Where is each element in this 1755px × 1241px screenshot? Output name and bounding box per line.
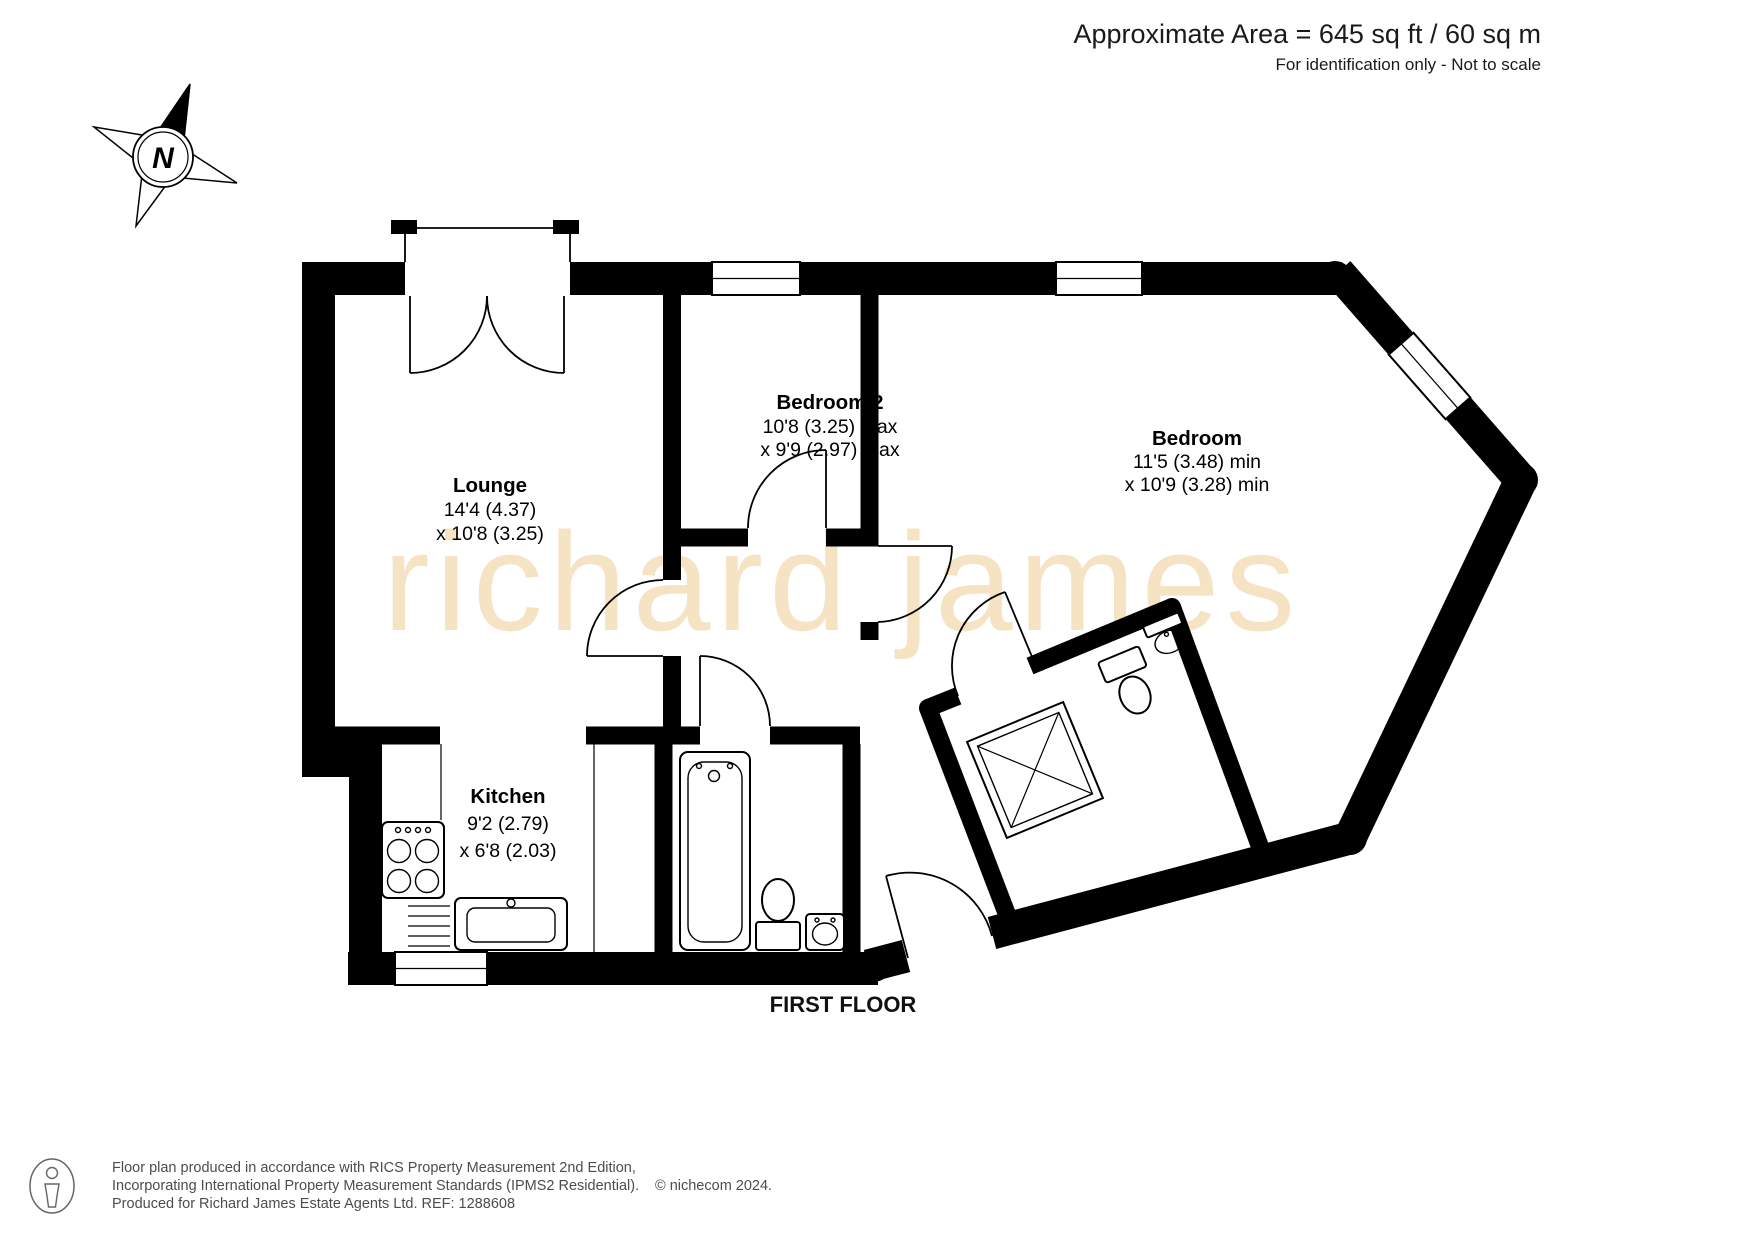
bedroom2-name: Bedroom 2 xyxy=(776,391,883,414)
footer-line1: Floor plan produced in accordance with R… xyxy=(112,1160,636,1176)
toilet xyxy=(756,879,800,950)
first-floor-label: FIRST FLOOR xyxy=(770,992,917,1017)
kitchen-name: Kitchen xyxy=(470,785,545,808)
lounge-name: Lounge xyxy=(453,474,527,497)
person-icon xyxy=(30,1159,74,1213)
shower xyxy=(967,702,1103,838)
bedroom-name: Bedroom xyxy=(1152,427,1242,450)
kitchen-sink xyxy=(408,898,567,950)
lounge-dim2: x 10'8 (3.25) xyxy=(436,523,544,545)
window-kitchen xyxy=(395,952,487,985)
bath xyxy=(680,752,750,950)
kitchen-dim2: x 6'8 (2.03) xyxy=(460,840,557,862)
footer-line3: Produced for Richard James Estate Agents… xyxy=(112,1196,515,1212)
door-post-left xyxy=(391,220,417,234)
window-bedroom xyxy=(1056,262,1142,295)
footer-line2: Incorporating International Property Mea… xyxy=(112,1178,639,1194)
bedroom2-dim2: x 9'9 (2.97) max xyxy=(760,439,899,461)
bedroom-label: Bedroom 11'5 (3.48) min x 10'9 (3.28) mi… xyxy=(1125,427,1270,496)
window-bedroom-diagonal xyxy=(1389,333,1471,419)
door-bathroom xyxy=(700,656,770,726)
footer: Floor plan produced in accordance with R… xyxy=(30,1159,772,1213)
lounge-label: Lounge 14'4 (4.37) x 10'8 (3.25) xyxy=(436,474,544,545)
compass-north-label: N xyxy=(152,142,175,175)
compass-rose-icon: N xyxy=(94,84,237,226)
hob xyxy=(382,822,444,898)
french-doors xyxy=(391,220,579,373)
bathroom-fixtures xyxy=(680,752,844,950)
bedroom-dim2: x 10'9 (3.28) min xyxy=(1125,474,1270,496)
header: Approximate Area = 645 sq ft / 60 sq m F… xyxy=(1073,19,1541,74)
approximate-area-text: Approximate Area = 645 sq ft / 60 sq m xyxy=(1073,19,1541,49)
footer-copyright: © nichecom 2024. xyxy=(655,1178,772,1194)
lounge-dim1: 14'4 (4.37) xyxy=(444,499,537,521)
floorplan-svg: richard james Approximate Area = 645 sq … xyxy=(0,0,1755,1241)
bedroom-dim1: 11'5 (3.48) min xyxy=(1133,451,1261,473)
bedroom2-label: Bedroom 2 10'8 (3.25) max x 9'9 (2.97) m… xyxy=(760,391,899,461)
door-post-right xyxy=(553,220,579,234)
identification-note-text: For identification only - Not to scale xyxy=(1275,55,1541,74)
kitchen-label: Kitchen 9'2 (2.79) x 6'8 (2.03) xyxy=(460,785,557,862)
basin xyxy=(806,914,844,950)
floorplan-page: richard james Approximate Area = 645 sq … xyxy=(0,0,1755,1241)
bedroom2-dim1: 10'8 (3.25) max xyxy=(763,416,898,438)
window-bedroom2 xyxy=(712,262,800,295)
kitchen-dim1: 9'2 (2.79) xyxy=(467,813,549,835)
